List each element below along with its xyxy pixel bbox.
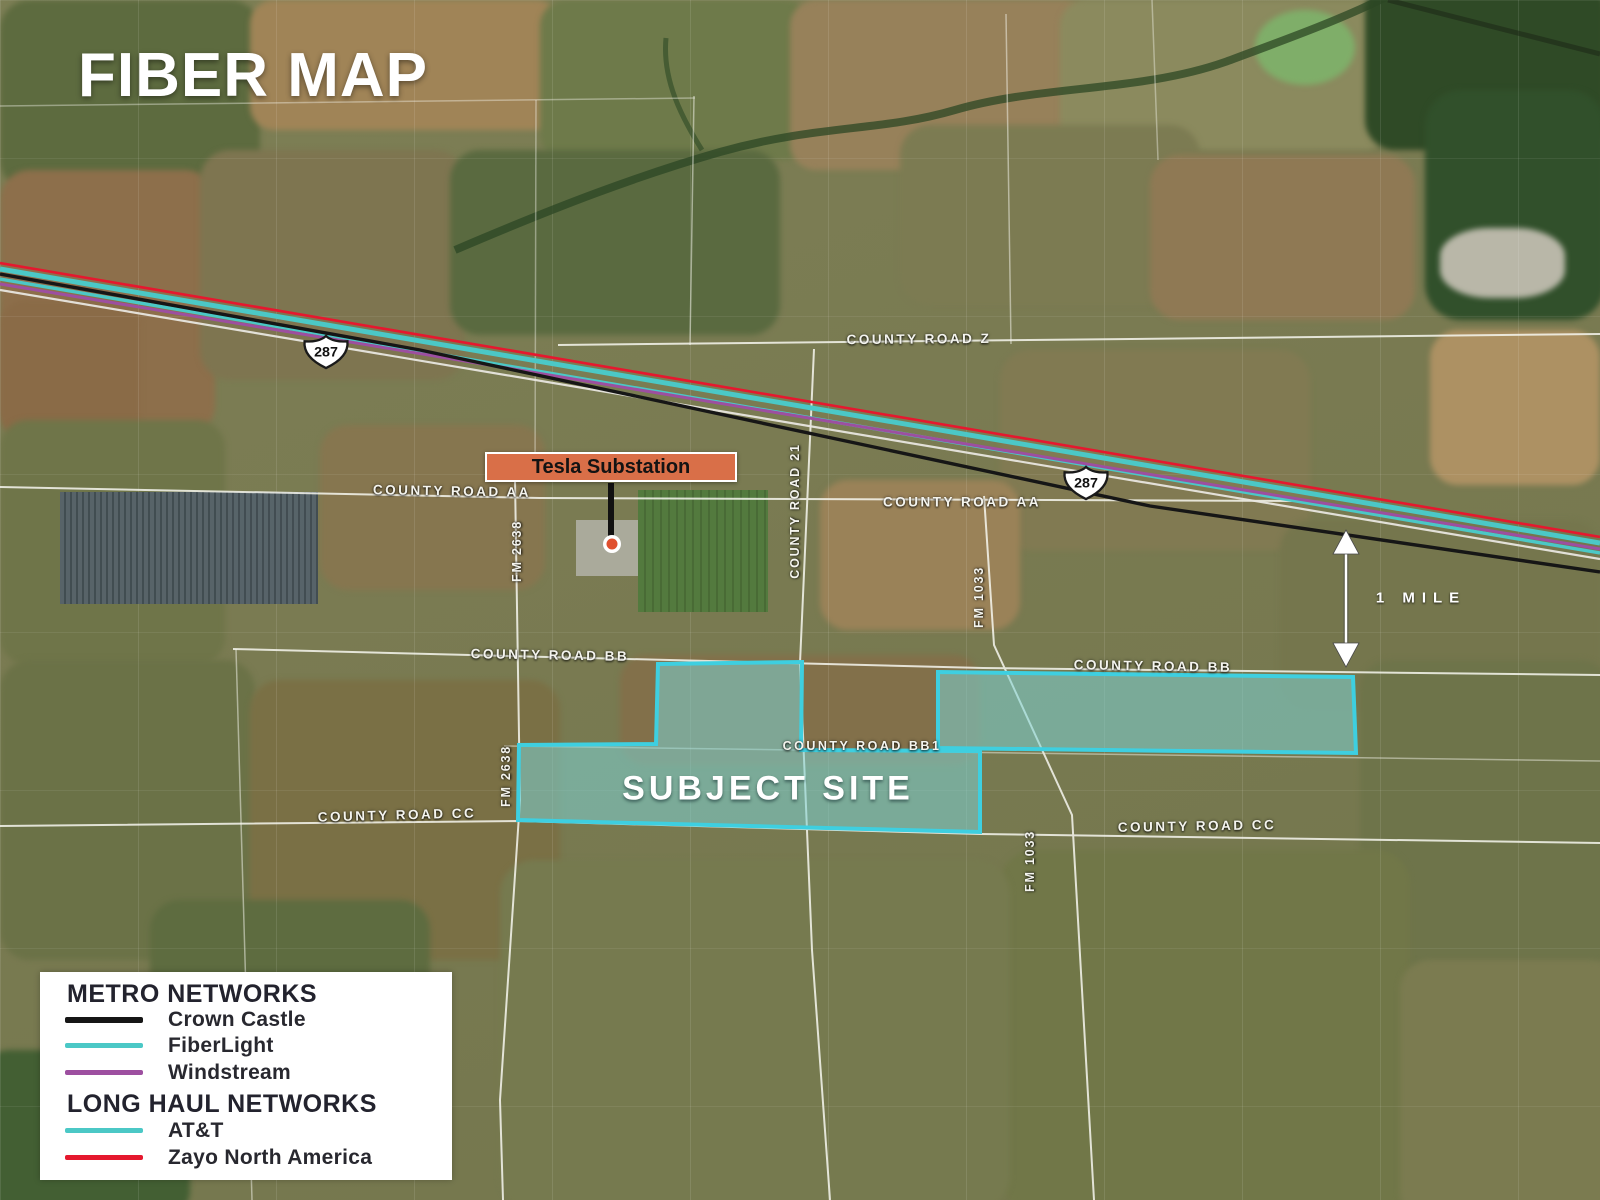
road-label-county-cc-east: COUNTY ROAD CC: [1118, 817, 1277, 835]
us-287-shield-west: 287: [301, 334, 351, 370]
treeline: [1388, 0, 1600, 54]
legend-item-zayo: Zayo North America: [168, 1146, 372, 1170]
creek: [455, 0, 1392, 250]
legend-item-fiberlight: FiberLight: [168, 1034, 274, 1058]
road-fm-2638: [500, 479, 520, 1200]
road-label-county-bb-west: COUNTY ROAD BB: [471, 646, 630, 664]
road-label-county-aa-east: COUNTY ROAD AA: [883, 495, 1041, 510]
road-label-county-aa-west: COUNTY ROAD AA: [373, 482, 531, 500]
road-label-county-21: COUNTY ROAD 21: [788, 443, 802, 578]
road-label-county-bb1: COUNTY ROAD BB1: [783, 739, 942, 753]
road-label-fm2638-south: FM 2638: [499, 745, 513, 807]
legend-panel: METRO NETWORKS Crown Castle FiberLight W…: [40, 972, 452, 1180]
subject-site-label: SUBJECT SITE: [622, 770, 914, 809]
zayo-line-swatch: [65, 1155, 143, 1160]
subject-site-east-polygon: [938, 672, 1356, 753]
legend-item-att: AT&T: [168, 1119, 224, 1143]
legend-long-haul-header: LONG HAUL NETWORKS: [67, 1090, 377, 1119]
tesla-substation-label: Tesla Substation: [485, 452, 737, 482]
svg-text:287: 287: [314, 344, 338, 360]
us-287-shield-east: 287: [1061, 465, 1111, 501]
svg-text:287: 287: [1074, 475, 1098, 491]
road-label-fm2638-north: FM 2638: [510, 520, 524, 582]
legend-metro-header: METRO NETWORKS: [67, 980, 317, 1009]
creek-branch: [665, 38, 702, 150]
road-fm-1033: [984, 496, 1094, 1200]
road-label-county-z: COUNTY ROAD Z: [847, 331, 992, 347]
crown-castle-line-swatch: [65, 1017, 143, 1023]
road-label-fm1033-south: FM 1033: [1023, 830, 1037, 892]
page-title: FIBER MAP: [78, 40, 428, 111]
fiberlight-line-swatch: [65, 1043, 143, 1048]
legend-item-windstream: Windstream: [168, 1061, 291, 1085]
scale-arrow: [1333, 530, 1359, 667]
road-label-county-bb-east: COUNTY ROAD BB: [1074, 657, 1233, 675]
substation-marker-dot: [607, 539, 618, 550]
fiber-map: COUNTY ROAD Z COUNTY ROAD AA COUNTY ROAD…: [0, 0, 1600, 1200]
legend-item-crown-castle: Crown Castle: [168, 1008, 306, 1032]
road-label-fm1033-north: FM 1033: [972, 566, 986, 628]
road-county-bb: [233, 649, 1600, 675]
road-county-z: [558, 334, 1600, 345]
one-mile-scale-label: 1 MILE: [1376, 590, 1466, 607]
windstream-line-swatch: [65, 1070, 143, 1075]
att-line-swatch: [65, 1128, 143, 1133]
